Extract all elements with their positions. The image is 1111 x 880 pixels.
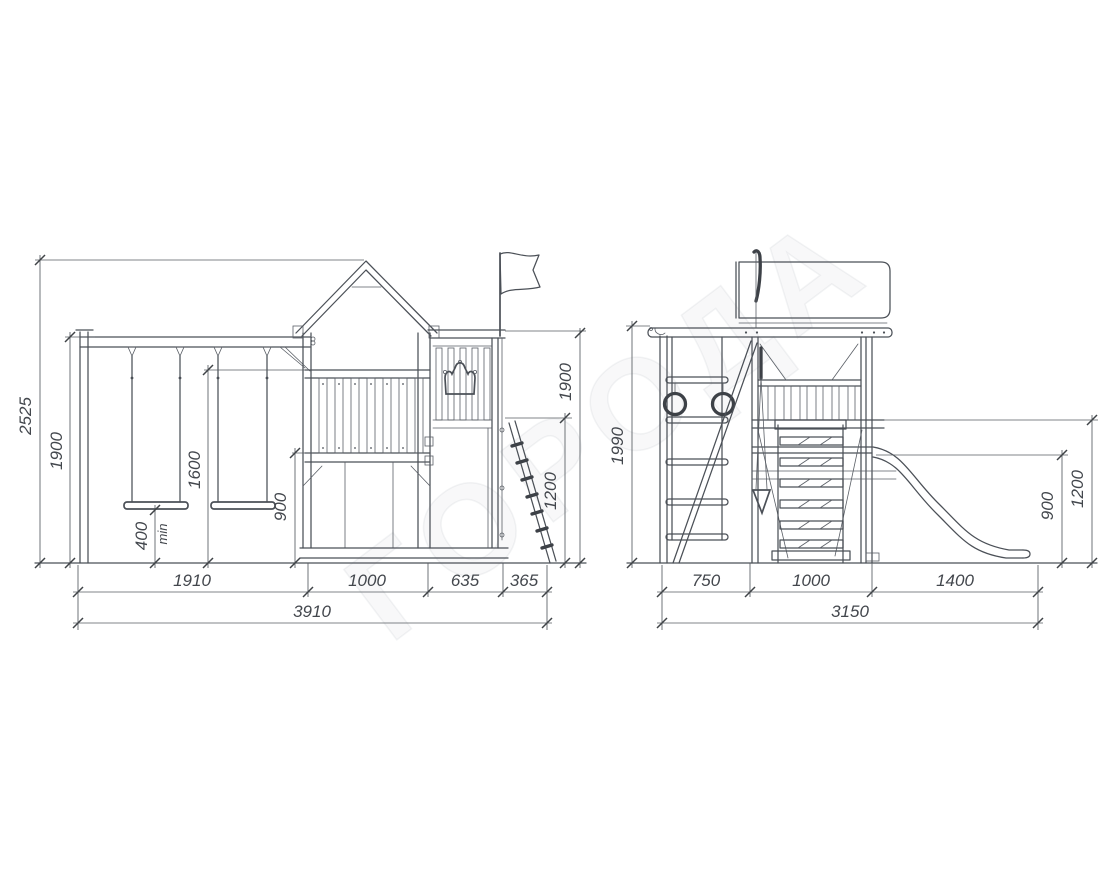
dim-front-platform-height: 900 xyxy=(271,492,290,521)
dim-side-slide-height: 900 xyxy=(1038,491,1057,520)
tread-hatching xyxy=(798,437,832,548)
hinge-icon xyxy=(425,456,433,465)
flag-icon xyxy=(500,253,540,294)
trapeze-handle-icon xyxy=(753,490,770,513)
dim-side-total-width: 3150 xyxy=(831,602,869,621)
dim-front-seat-height: 400 xyxy=(132,521,151,550)
dim-front-tower-width: 1000 xyxy=(348,571,386,590)
dim-side-ladder-width: 750 xyxy=(692,571,721,590)
dim-front-panel-height: 1900 xyxy=(556,363,575,401)
playground-drawing-canvas: ГОРОДА xyxy=(0,0,1111,880)
dim-front-beam-height: 1900 xyxy=(47,432,66,470)
swing-left xyxy=(124,347,188,509)
dim-front-ramp-width: 365 xyxy=(510,571,539,590)
dim-front-ramp-height: 1200 xyxy=(541,472,560,510)
dim-side-slide-width: 1400 xyxy=(936,571,974,590)
balusters xyxy=(319,378,423,453)
slide xyxy=(866,447,1030,561)
hinge-icon xyxy=(425,437,433,446)
balcony-railing xyxy=(305,370,430,462)
swing-right xyxy=(211,347,275,509)
dim-front-total-height: 2525 xyxy=(16,397,35,436)
dim-front-handrail-height: 1600 xyxy=(185,451,204,489)
swing-hanger-icon xyxy=(128,347,136,356)
dim-front-panel-width: 635 xyxy=(451,571,480,590)
dim-front-seat-note: min xyxy=(155,524,170,545)
dim-front-swing-width: 1910 xyxy=(173,571,211,590)
dim-side-total-height: 1990 xyxy=(608,427,627,465)
swing-frame xyxy=(76,330,315,563)
dim-side-guard-height: 1200 xyxy=(1068,470,1087,508)
swing-seat xyxy=(211,502,275,509)
panel-slats xyxy=(436,348,490,420)
gable-roof xyxy=(293,261,439,338)
dim-side-tower-width: 1000 xyxy=(792,571,830,590)
guard-balusters xyxy=(768,386,855,420)
technical-drawing-page: ГОРОДА xyxy=(0,0,1111,880)
dim-front-total-width: 3910 xyxy=(293,602,331,621)
